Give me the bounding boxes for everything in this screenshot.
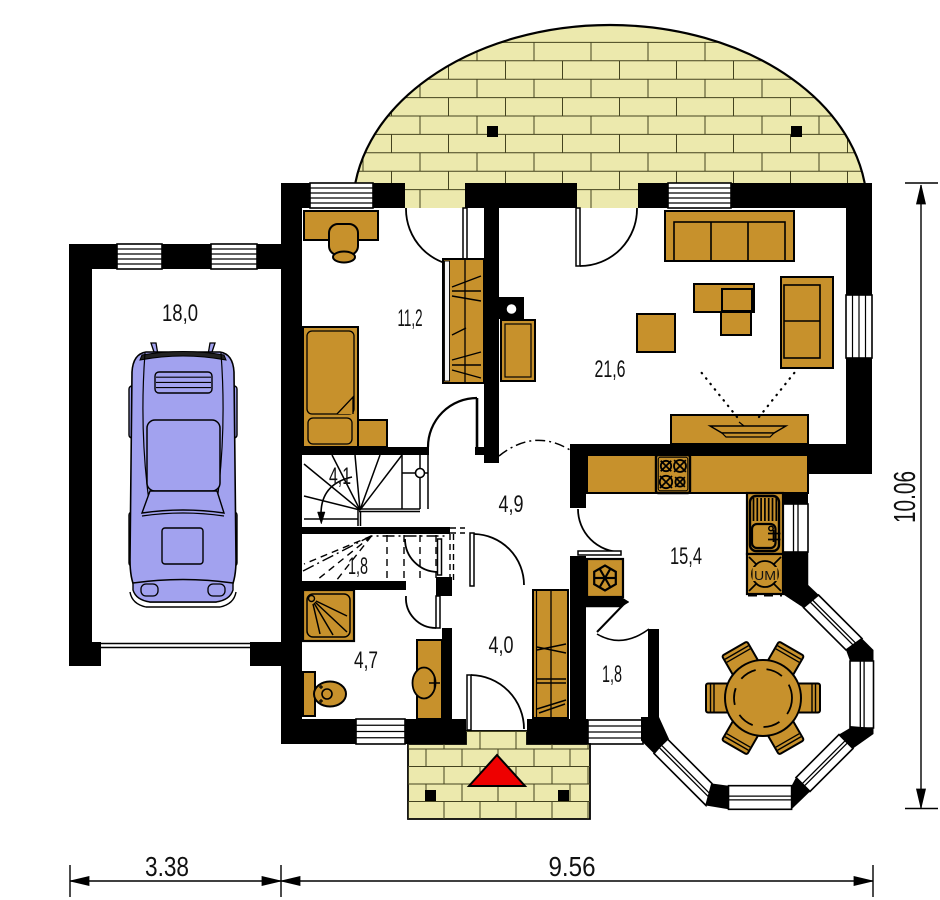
svg-text:4,1: 4,1 [329,463,351,490]
svg-text:10.06: 10.06 [887,471,922,523]
svg-text:21,6: 21,6 [595,356,626,383]
svg-text:1,8: 1,8 [348,553,368,580]
svg-text:4,9: 4,9 [499,491,524,518]
svg-text:4,0: 4,0 [489,632,514,659]
svg-text:3.38: 3.38 [145,851,189,882]
svg-text:18,0: 18,0 [162,300,198,327]
svg-text:11,2: 11,2 [398,305,423,332]
svg-text:15,4: 15,4 [670,543,702,570]
svg-text:9.56: 9.56 [549,851,596,882]
svg-text:1,8: 1,8 [602,661,622,688]
svg-text:UM: UM [754,568,776,583]
svg-text:4,7: 4,7 [354,647,378,674]
